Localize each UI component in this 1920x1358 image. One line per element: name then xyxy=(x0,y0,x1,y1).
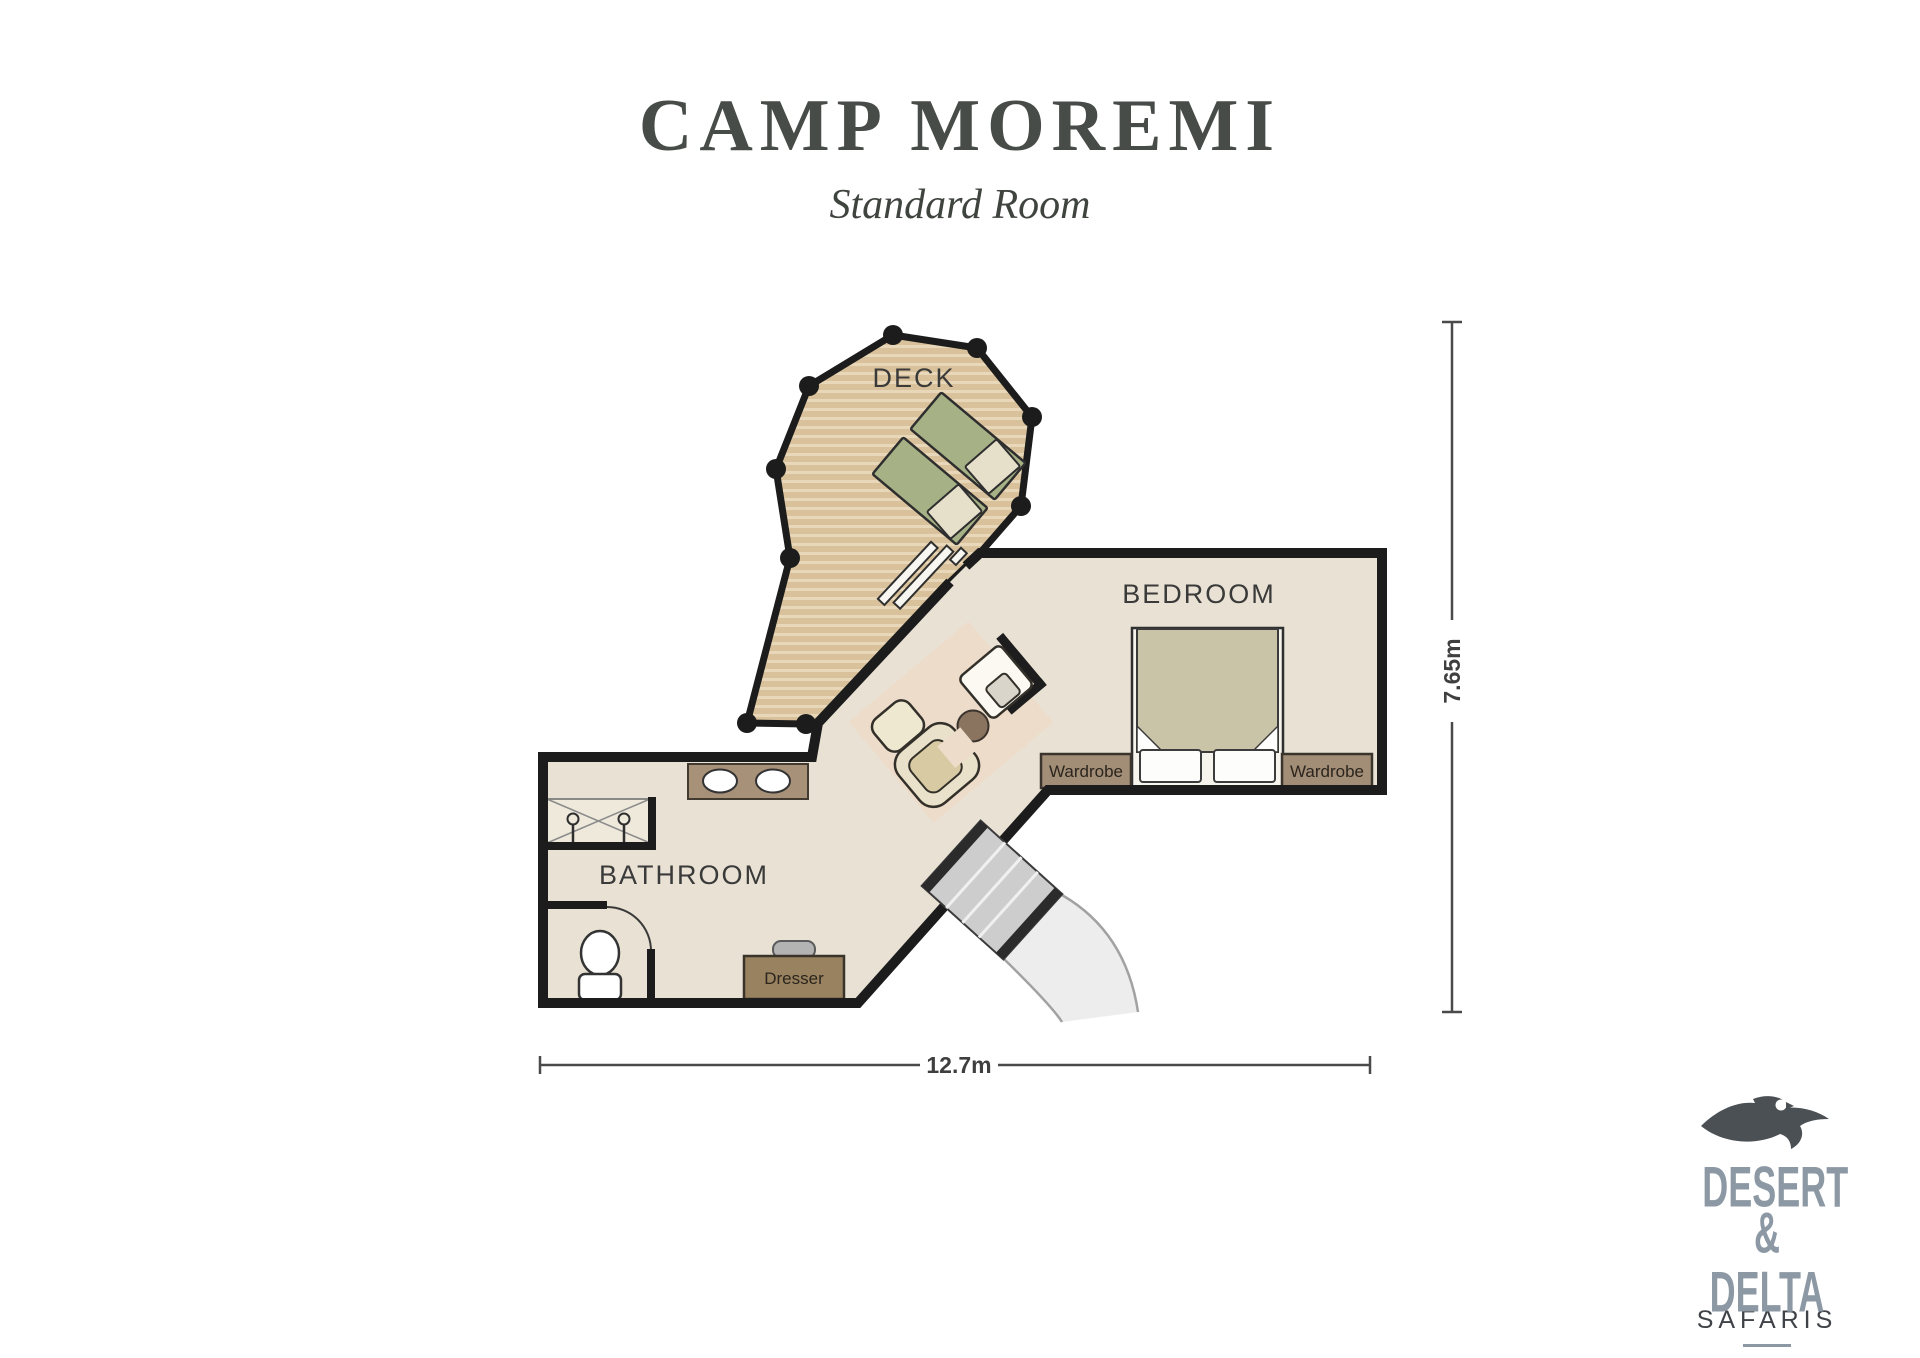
dimension-label-height: 7.65m xyxy=(1439,638,1465,703)
dimension-label-width: 12.7m xyxy=(926,1052,991,1078)
brand-logo: DESERT & DELTA SAFARIS xyxy=(1686,1094,1848,1347)
wardrobe-left-label: Wardrobe xyxy=(1049,762,1123,781)
eagle-icon xyxy=(1697,1094,1837,1154)
logo-line2: & DELTA xyxy=(1702,1204,1832,1322)
wardrobe-right-label: Wardrobe xyxy=(1290,762,1364,781)
logo-underline xyxy=(1743,1344,1791,1347)
sink-left xyxy=(703,770,737,793)
sink-right xyxy=(756,770,790,793)
bed-duvet xyxy=(1137,629,1278,752)
deck-label: DECK xyxy=(872,363,955,393)
pillow-right xyxy=(1214,750,1275,782)
dresser-label: Dresser xyxy=(764,969,824,988)
floorplan-page: CAMP MOREMI Standard Room xyxy=(0,0,1920,1358)
toilet xyxy=(579,931,621,1000)
floor-plan: DECK xyxy=(0,0,1920,1358)
shower-head-right xyxy=(619,814,630,825)
bedroom-label: BEDROOM xyxy=(1122,579,1276,609)
pillow-left xyxy=(1140,750,1201,782)
bathroom-label: BATHROOM xyxy=(599,860,769,890)
shower xyxy=(543,797,652,846)
shower-head-left xyxy=(568,814,579,825)
vanity xyxy=(688,764,808,799)
